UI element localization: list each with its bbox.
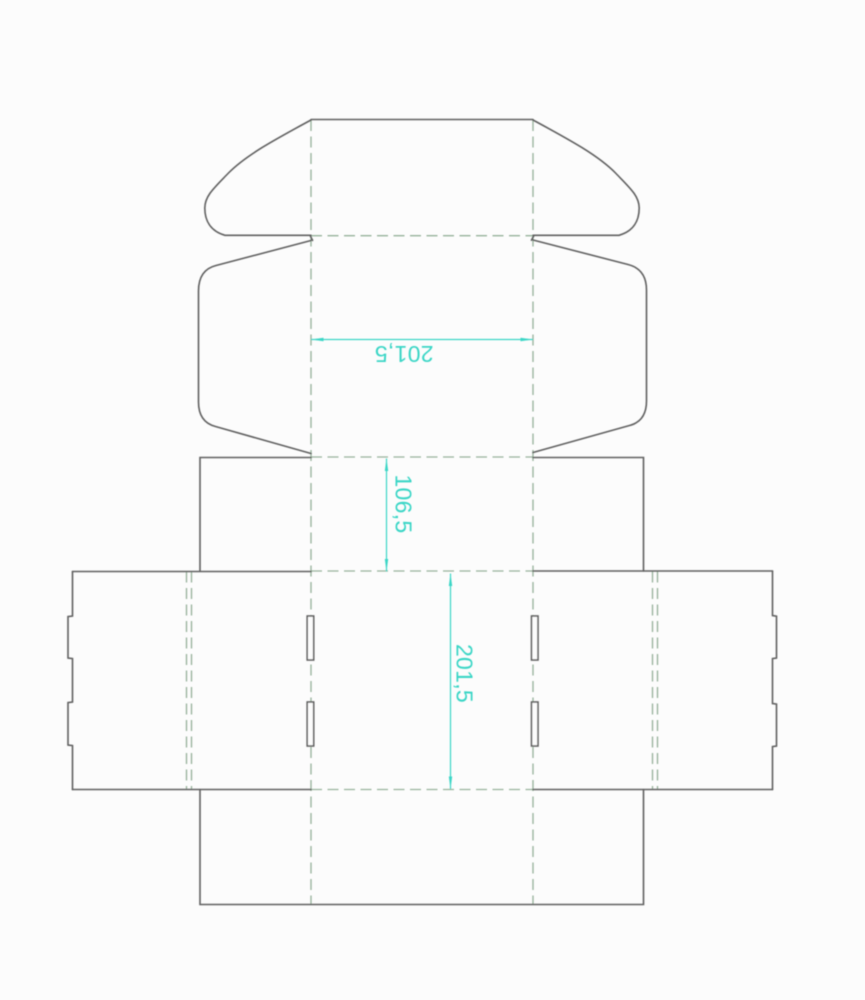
svg-text:201,5: 201,5: [374, 341, 433, 367]
svg-text:106,5: 106,5: [390, 474, 416, 533]
svg-text:201,5: 201,5: [451, 644, 477, 703]
